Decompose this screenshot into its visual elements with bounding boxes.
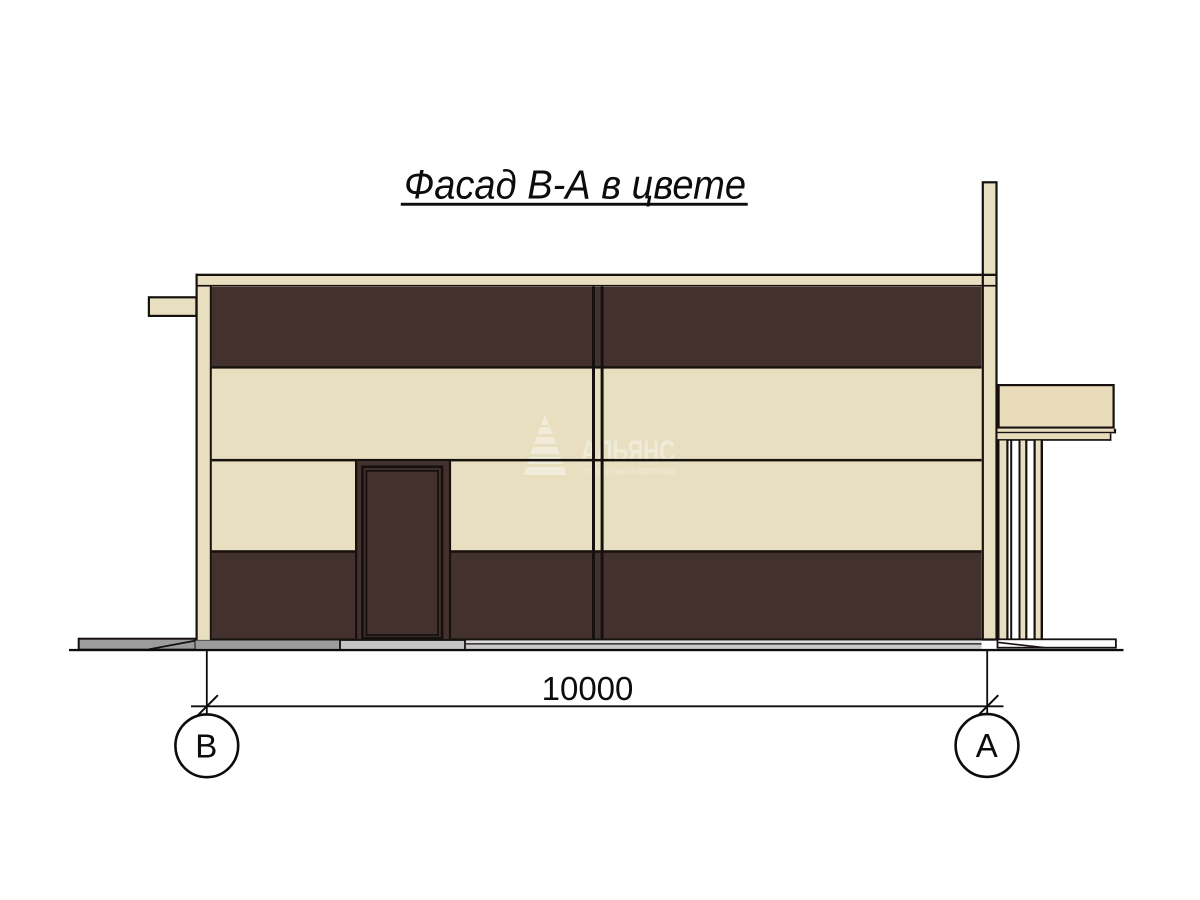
svg-text:В: В <box>195 727 217 764</box>
svg-text:СТРОИТЕЛЬНАЯ КОМПАНИЯ: СТРОИТЕЛЬНАЯ КОМПАНИЯ <box>583 468 675 477</box>
svg-text:А: А <box>976 727 998 764</box>
svg-text:10000: 10000 <box>542 670 634 707</box>
svg-text:Фасад В-А в цвете: Фасад В-А в цвете <box>404 162 746 208</box>
svg-text:АЛЬЯНС: АЛЬЯНС <box>581 434 675 469</box>
